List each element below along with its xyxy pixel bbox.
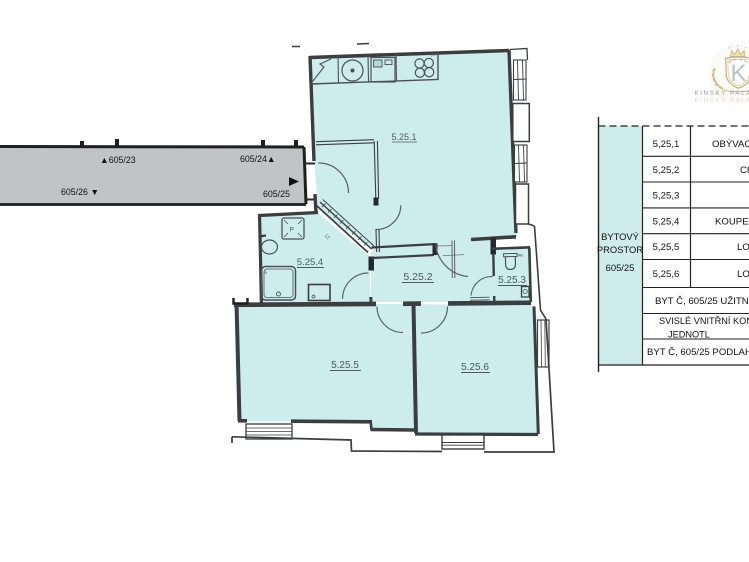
svg-text:BYT Č, 605/25 UŽITNÁ PL: BYT Č, 605/25 UŽITNÁ PL: [655, 296, 749, 307]
svg-text:JEDNOTL: JEDNOTL: [668, 330, 710, 340]
svg-text:BYT Č, 605/25 PODLAHOVÁ: BYT Č, 605/25 PODLAHOVÁ: [647, 347, 749, 358]
svg-text:5.25.5: 5.25.5: [331, 360, 359, 371]
svg-text:CHODBA: CHODBA: [740, 165, 749, 176]
svg-text:5,25,6: 5,25,6: [653, 269, 680, 280]
svg-text:PROSTOR: PROSTOR: [597, 244, 643, 255]
svg-text:5.25.3: 5.25.3: [498, 275, 526, 286]
svg-text:5,25,4: 5,25,4: [653, 217, 680, 228]
svg-text:5.25.6: 5.25.6: [461, 362, 489, 373]
svg-text:wc: wc: [518, 253, 524, 258]
svg-text:5.25.1: 5.25.1: [391, 132, 416, 142]
svg-text:KOUPELNA: KOUPELNA: [715, 217, 749, 228]
svg-text:pv: pv: [431, 52, 437, 57]
svg-text:5,25,2: 5,25,2: [653, 165, 680, 176]
svg-text:605/24▲: 605/24▲: [240, 154, 276, 164]
svg-text:5,25,1: 5,25,1: [653, 139, 680, 150]
svg-text:605/25: 605/25: [263, 189, 290, 199]
svg-text:LODŽIE: LODŽIE: [737, 242, 749, 253]
svg-text:OBÝVACÍ POKOJ: OBÝVACÍ POKOJ: [712, 139, 749, 150]
svg-text:LODŽIE: LODŽIE: [737, 269, 749, 280]
svg-text:P: P: [290, 227, 294, 234]
svg-text:605/25: 605/25: [606, 262, 635, 273]
svg-text:5,25,5: 5,25,5: [653, 242, 680, 253]
svg-text:5.25.4: 5.25.4: [297, 257, 323, 268]
svg-text:KINSKY PALA: KINSKY PALA: [695, 97, 749, 104]
svg-text:SVISLÉ VNITŘNÍ KONSTR: SVISLÉ VNITŘNÍ KONSTR: [659, 316, 749, 326]
svg-text:5,25,3: 5,25,3: [653, 191, 680, 202]
svg-text:▲605/23: ▲605/23: [100, 155, 136, 165]
svg-text:KINSKY PALA: KINSKY PALA: [695, 90, 749, 97]
svg-text:K: K: [730, 60, 746, 87]
svg-text:605/26 ▼: 605/26 ▼: [61, 187, 99, 197]
svg-text:5.25.2: 5.25.2: [403, 271, 432, 283]
svg-text:BYTOVÝ: BYTOVÝ: [601, 231, 640, 242]
